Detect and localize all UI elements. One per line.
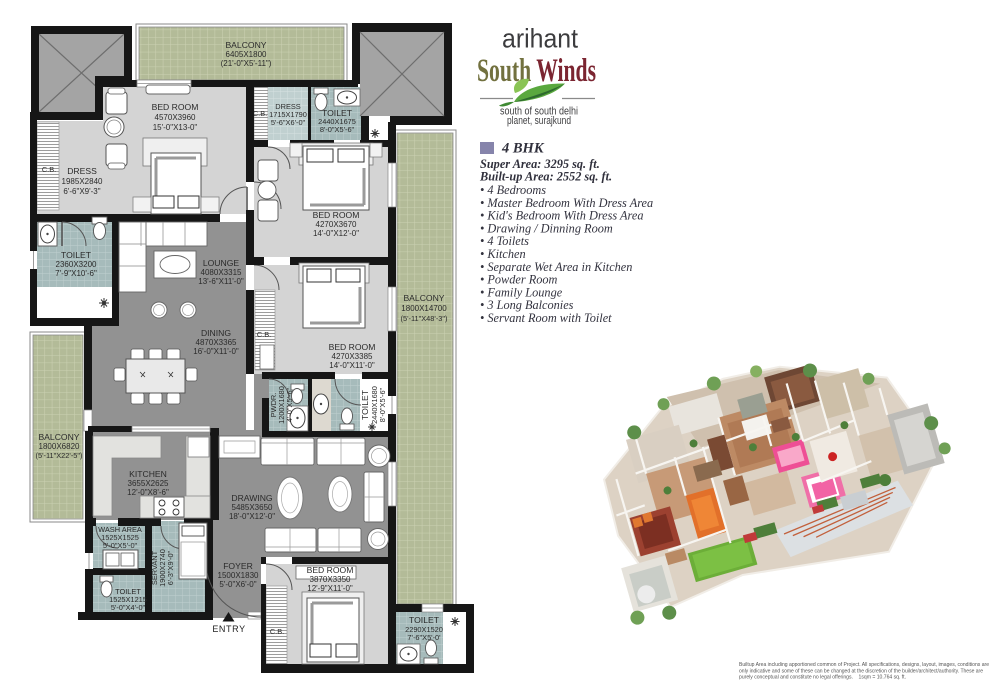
svg-text:4 BHK: 4 BHK — [501, 141, 545, 157]
svg-text:DRAWING: DRAWING — [231, 493, 273, 503]
svg-text:BED ROOM: BED ROOM — [329, 342, 376, 352]
svg-text:Built-up Area: 2552 sq. ft.: Built-up Area: 2552 sq. ft. — [479, 170, 612, 184]
svg-text:15'-0"X13-0": 15'-0"X13-0" — [153, 123, 198, 132]
svg-text:6405X1800: 6405X1800 — [226, 50, 267, 59]
svg-text:(5'-11"X48'-3"): (5'-11"X48'-3") — [401, 314, 448, 323]
svg-text:C.B.: C.B. — [42, 165, 56, 174]
svg-text:TOILET: TOILET — [61, 250, 92, 260]
svg-text:BED ROOM: BED ROOM — [152, 102, 199, 112]
svg-text:5'-6"X6'-0": 5'-6"X6'-0" — [271, 118, 306, 127]
svg-text:planet, surajkund: planet, surajkund — [507, 115, 571, 127]
svg-text:Builtup Area including apporti: Builtup Area including apportioned commo… — [739, 662, 989, 668]
svg-text:(21'-0"X5'-11"): (21'-0"X5'-11") — [221, 59, 272, 68]
svg-text:8'-0"X5'-6": 8'-0"X5'-6" — [378, 387, 387, 422]
svg-text:TOILET: TOILET — [409, 615, 440, 625]
svg-text:14'-0"X12'-0": 14'-0"X12'-0" — [313, 229, 359, 238]
svg-text:(5'-11"X22'-5"): (5'-11"X22'-5") — [36, 451, 83, 460]
svg-text:4270X3670: 4270X3670 — [316, 220, 357, 229]
svg-text:14'-0"X11'-0": 14'-0"X11'-0" — [329, 361, 375, 370]
svg-text:4'-0"X5'-6": 4'-0"X5'-6" — [285, 387, 294, 422]
svg-text:C.B.: C.B. — [257, 330, 271, 339]
svg-text:4080X3315: 4080X3315 — [201, 268, 242, 277]
svg-text:KITCHEN: KITCHEN — [129, 469, 167, 479]
svg-text:1800X6820: 1800X6820 — [39, 442, 80, 451]
svg-text:LOUNGE: LOUNGE — [203, 258, 240, 268]
svg-text:7'-9"X10'-6": 7'-9"X10'-6" — [55, 269, 97, 278]
svg-text:BALCONY: BALCONY — [403, 293, 444, 303]
svg-text:7'-6"X5'-0': 7'-6"X5'-0' — [407, 633, 441, 642]
svg-text:1500X1830: 1500X1830 — [218, 571, 259, 580]
svg-text:purely conceptual and constitu: purely conceptual and constitute no lega… — [739, 675, 906, 681]
svg-text:5485X3650: 5485X3650 — [232, 503, 273, 512]
svg-text:12'-0"X8'-6": 12'-0"X8'-6" — [127, 488, 169, 497]
svg-text:6'-6"X9'-3": 6'-6"X9'-3" — [63, 187, 100, 196]
svg-text:only indicative and some of th: only indicative and some of these can be… — [739, 668, 983, 674]
svg-text:8'-0"X5'-6": 8'-0"X5'-6" — [320, 125, 355, 134]
svg-text:1800X14700: 1800X14700 — [401, 304, 447, 313]
svg-text:BALCONY: BALCONY — [225, 40, 266, 50]
svg-text:6'-3"X9'-0": 6'-3"X9'-0" — [166, 550, 175, 585]
svg-text:4870X3365: 4870X3365 — [196, 338, 237, 347]
svg-text:C.B.: C.B. — [253, 109, 267, 118]
svg-text:3655X2625: 3655X2625 — [128, 479, 169, 488]
svg-text:13'-6"X11'-0": 13'-6"X11'-0" — [198, 277, 244, 286]
svg-text:C.B.: C.B. — [270, 627, 284, 636]
svg-text:4570X3960: 4570X3960 — [155, 113, 196, 122]
svg-text:16'-0"X11'-0": 16'-0"X11'-0" — [193, 347, 239, 356]
svg-text:5'-0"X6'-0": 5'-0"X6'-0" — [219, 580, 256, 589]
svg-text:18'-0"X12'-0": 18'-0"X12'-0" — [229, 512, 275, 521]
svg-text:5'-0"X4'-0": 5'-0"X4'-0" — [111, 603, 146, 612]
svg-text:DINING: DINING — [201, 328, 231, 338]
svg-text:1985X2840: 1985X2840 — [62, 177, 103, 186]
svg-text:FOYER: FOYER — [223, 561, 253, 571]
svg-text:12'-9"X11'-0": 12'-9"X11'-0" — [307, 584, 353, 593]
svg-text:BALCONY: BALCONY — [38, 432, 79, 442]
svg-text:DRESS: DRESS — [67, 166, 97, 176]
svg-text:2360X3200: 2360X3200 — [56, 260, 97, 269]
svg-text:• Servant Room with Toilet: • Servant Room with Toilet — [480, 311, 612, 325]
svg-text:TOILET: TOILET — [360, 389, 370, 420]
svg-text:arihant: arihant — [502, 24, 578, 54]
svg-text:3870X3350: 3870X3350 — [310, 575, 351, 584]
svg-text:BED ROOM: BED ROOM — [313, 210, 360, 220]
svg-text:BED ROOM: BED ROOM — [307, 565, 354, 575]
svg-text:4270X3385: 4270X3385 — [332, 352, 373, 361]
svg-text:5'-0"X5'-0": 5'-0"X5'-0" — [103, 541, 138, 550]
svg-text:South Winds: South Winds — [477, 53, 596, 89]
svg-text:ENTRY: ENTRY — [212, 624, 245, 634]
